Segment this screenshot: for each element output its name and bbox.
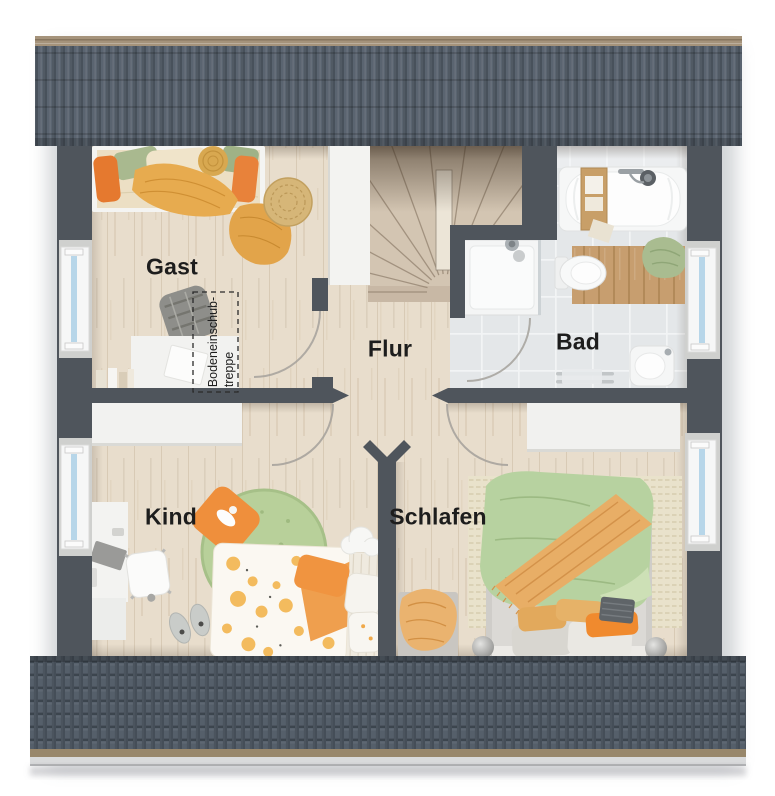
label-flur: Flur [368,336,412,363]
label-schlafen: Schlafen [389,504,486,531]
schlafen-dresser [527,402,680,452]
wall-bad-bottom [448,388,688,403]
wall-exterior-right [687,146,722,658]
gast-bed [92,145,265,217]
kind-bed [210,543,388,663]
wall-stairs-bad [522,146,557,228]
attic-stairs-line2: treppe [221,297,237,387]
shower-drain [513,250,525,262]
roof-top [35,36,742,146]
window-schlafen [685,433,720,551]
shower-glass [538,240,541,315]
label-bad: Bad [556,329,600,356]
gast-books [96,368,134,391]
schlafen-bed [472,471,667,660]
label-kind: Kind [145,504,197,531]
wall-gast-bottom [57,388,333,403]
window-kind [59,438,92,556]
window-bad [685,241,720,359]
bedside-ball-lamp-right [645,637,667,659]
shower [464,235,541,315]
attic-stairs-line1: Bodeneinschub- [205,297,221,387]
schlafen-bench [398,589,458,658]
wall-shower-north [450,225,557,240]
label-gast: Gast [146,254,198,281]
wall-gast-jamb [312,278,328,311]
window-gast [59,240,92,358]
toilet [555,256,606,290]
kind-dresser [92,402,242,446]
wall-bad-west [450,240,465,318]
label-attic-stairs: Bodeneinschub- treppe [205,297,238,387]
bedside-ball-lamp-left [472,636,494,658]
gast-pouf [264,178,312,226]
schlafen-folded-blanket [599,596,635,623]
floorplan-drawing [0,0,775,796]
wall-white-stairwell [328,146,370,285]
bidet [630,346,674,386]
floorplan-stage: Gast Flur Bad Kind Schlafen Bodeneinschu… [0,0,775,796]
roof-bottom [30,656,746,776]
